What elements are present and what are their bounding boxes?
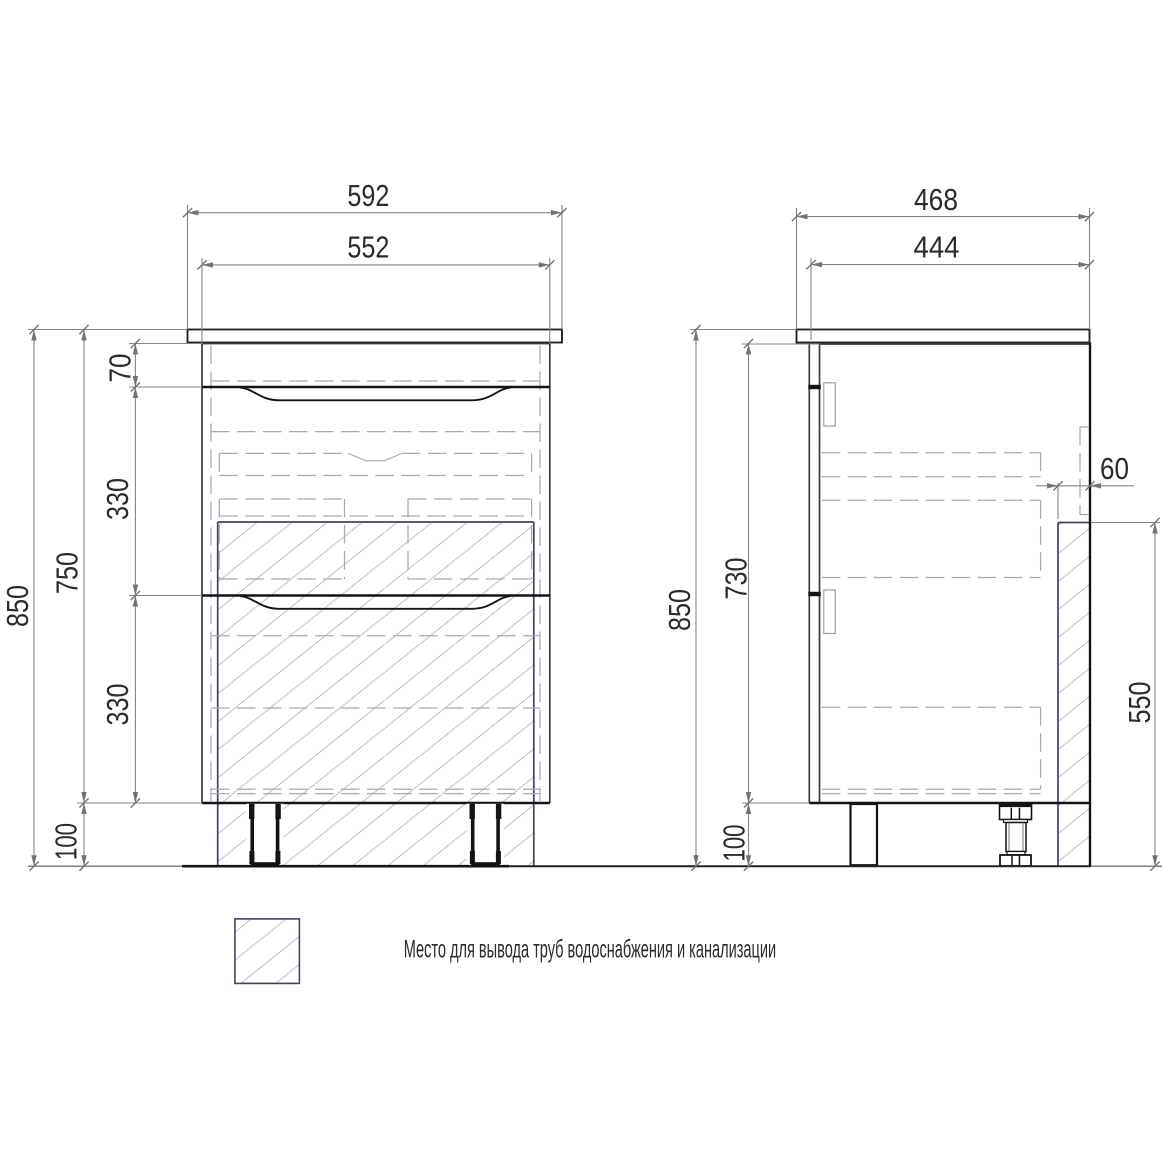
svg-text:550: 550 bbox=[1123, 682, 1157, 724]
svg-text:60: 60 bbox=[1100, 452, 1129, 486]
svg-text:330: 330 bbox=[101, 684, 135, 726]
svg-text:750: 750 bbox=[51, 552, 85, 594]
svg-text:468: 468 bbox=[914, 183, 958, 217]
svg-text:592: 592 bbox=[347, 179, 389, 213]
svg-text:70: 70 bbox=[104, 354, 138, 383]
svg-text:330: 330 bbox=[101, 478, 135, 520]
svg-text:730: 730 bbox=[720, 558, 754, 600]
svg-text:444: 444 bbox=[914, 230, 960, 264]
svg-text:850: 850 bbox=[1, 585, 35, 627]
svg-text:100: 100 bbox=[718, 825, 752, 862]
svg-text:Место для вывода труб водоснаб: Место для вывода труб водоснабжения и ка… bbox=[404, 936, 776, 964]
svg-text:552: 552 bbox=[347, 230, 389, 264]
svg-text:850: 850 bbox=[663, 589, 697, 631]
svg-text:100: 100 bbox=[50, 823, 84, 860]
